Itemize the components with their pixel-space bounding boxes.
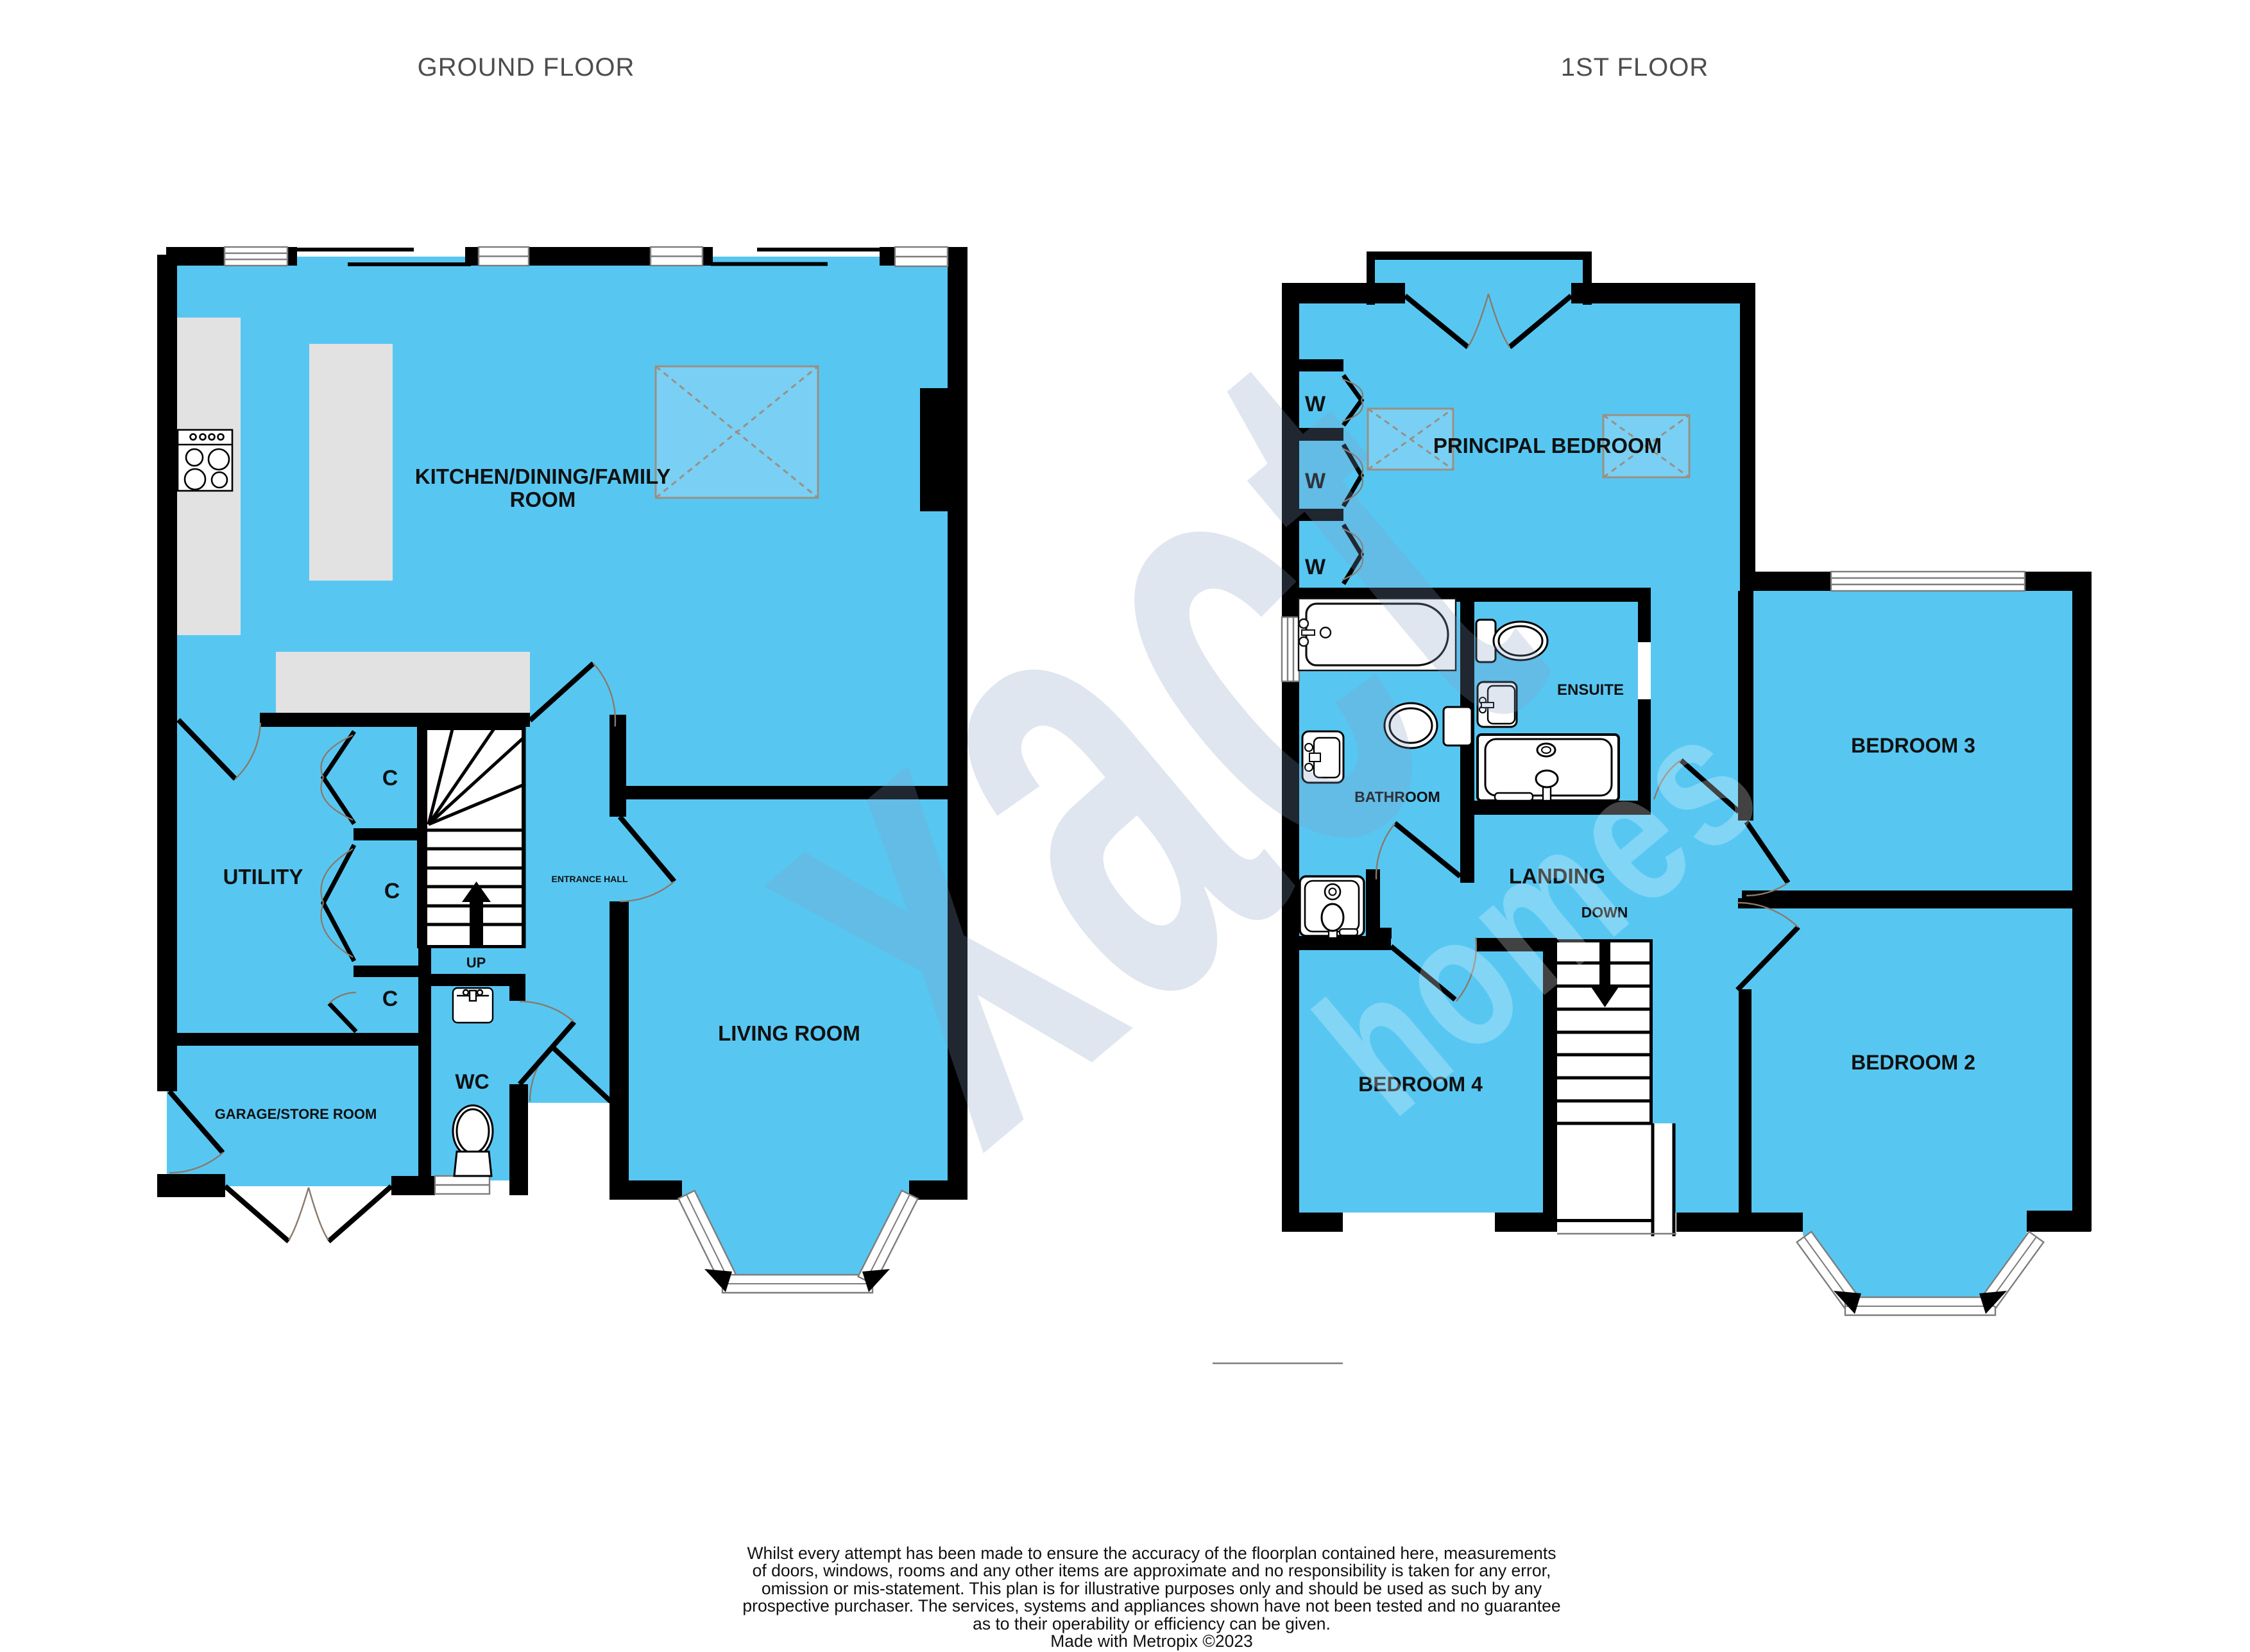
svg-text:1ST FLOOR: 1ST FLOOR	[1561, 53, 1709, 81]
svg-text:UTILITY: UTILITY	[223, 865, 303, 889]
svg-text:prospective purchaser. The ser: prospective purchaser. The services, sys…	[742, 1596, 1560, 1615]
svg-text:Made with Metropix ©2023: Made with Metropix ©2023	[1050, 1631, 1253, 1651]
svg-text:PRINCIPAL BEDROOM: PRINCIPAL BEDROOM	[1433, 434, 1662, 457]
svg-text:C: C	[382, 987, 398, 1011]
svg-text:BEDROOM 3: BEDROOM 3	[1851, 734, 1975, 757]
svg-text:WC: WC	[455, 1070, 489, 1093]
svg-text:GARAGE/STORE ROOM: GARAGE/STORE ROOM	[215, 1106, 377, 1122]
svg-text:BEDROOM 2: BEDROOM 2	[1851, 1051, 1975, 1074]
svg-text:GROUND FLOOR: GROUND FLOOR	[418, 53, 635, 81]
svg-text:KITCHEN/DINING/FAMILY: KITCHEN/DINING/FAMILY	[415, 464, 670, 488]
svg-text:C: C	[382, 766, 398, 790]
svg-text:UP: UP	[466, 955, 486, 971]
svg-text:LIVING ROOM: LIVING ROOM	[718, 1021, 860, 1045]
svg-text:C: C	[384, 879, 400, 903]
svg-text:as to their operability or eff: as to their operability or efficiency ca…	[973, 1614, 1331, 1633]
svg-text:Whilst every attempt has been: Whilst every attempt has been made to en…	[747, 1544, 1556, 1563]
svg-text:ROOM: ROOM	[510, 488, 576, 511]
svg-text:of doors, windows, rooms and a: of doors, windows, rooms and any other i…	[753, 1561, 1551, 1580]
svg-text:ENTRANCE HALL: ENTRANCE HALL	[552, 874, 628, 884]
svg-text:omission or mis-statement. Thi: omission or mis-statement. This plan is …	[762, 1579, 1542, 1598]
